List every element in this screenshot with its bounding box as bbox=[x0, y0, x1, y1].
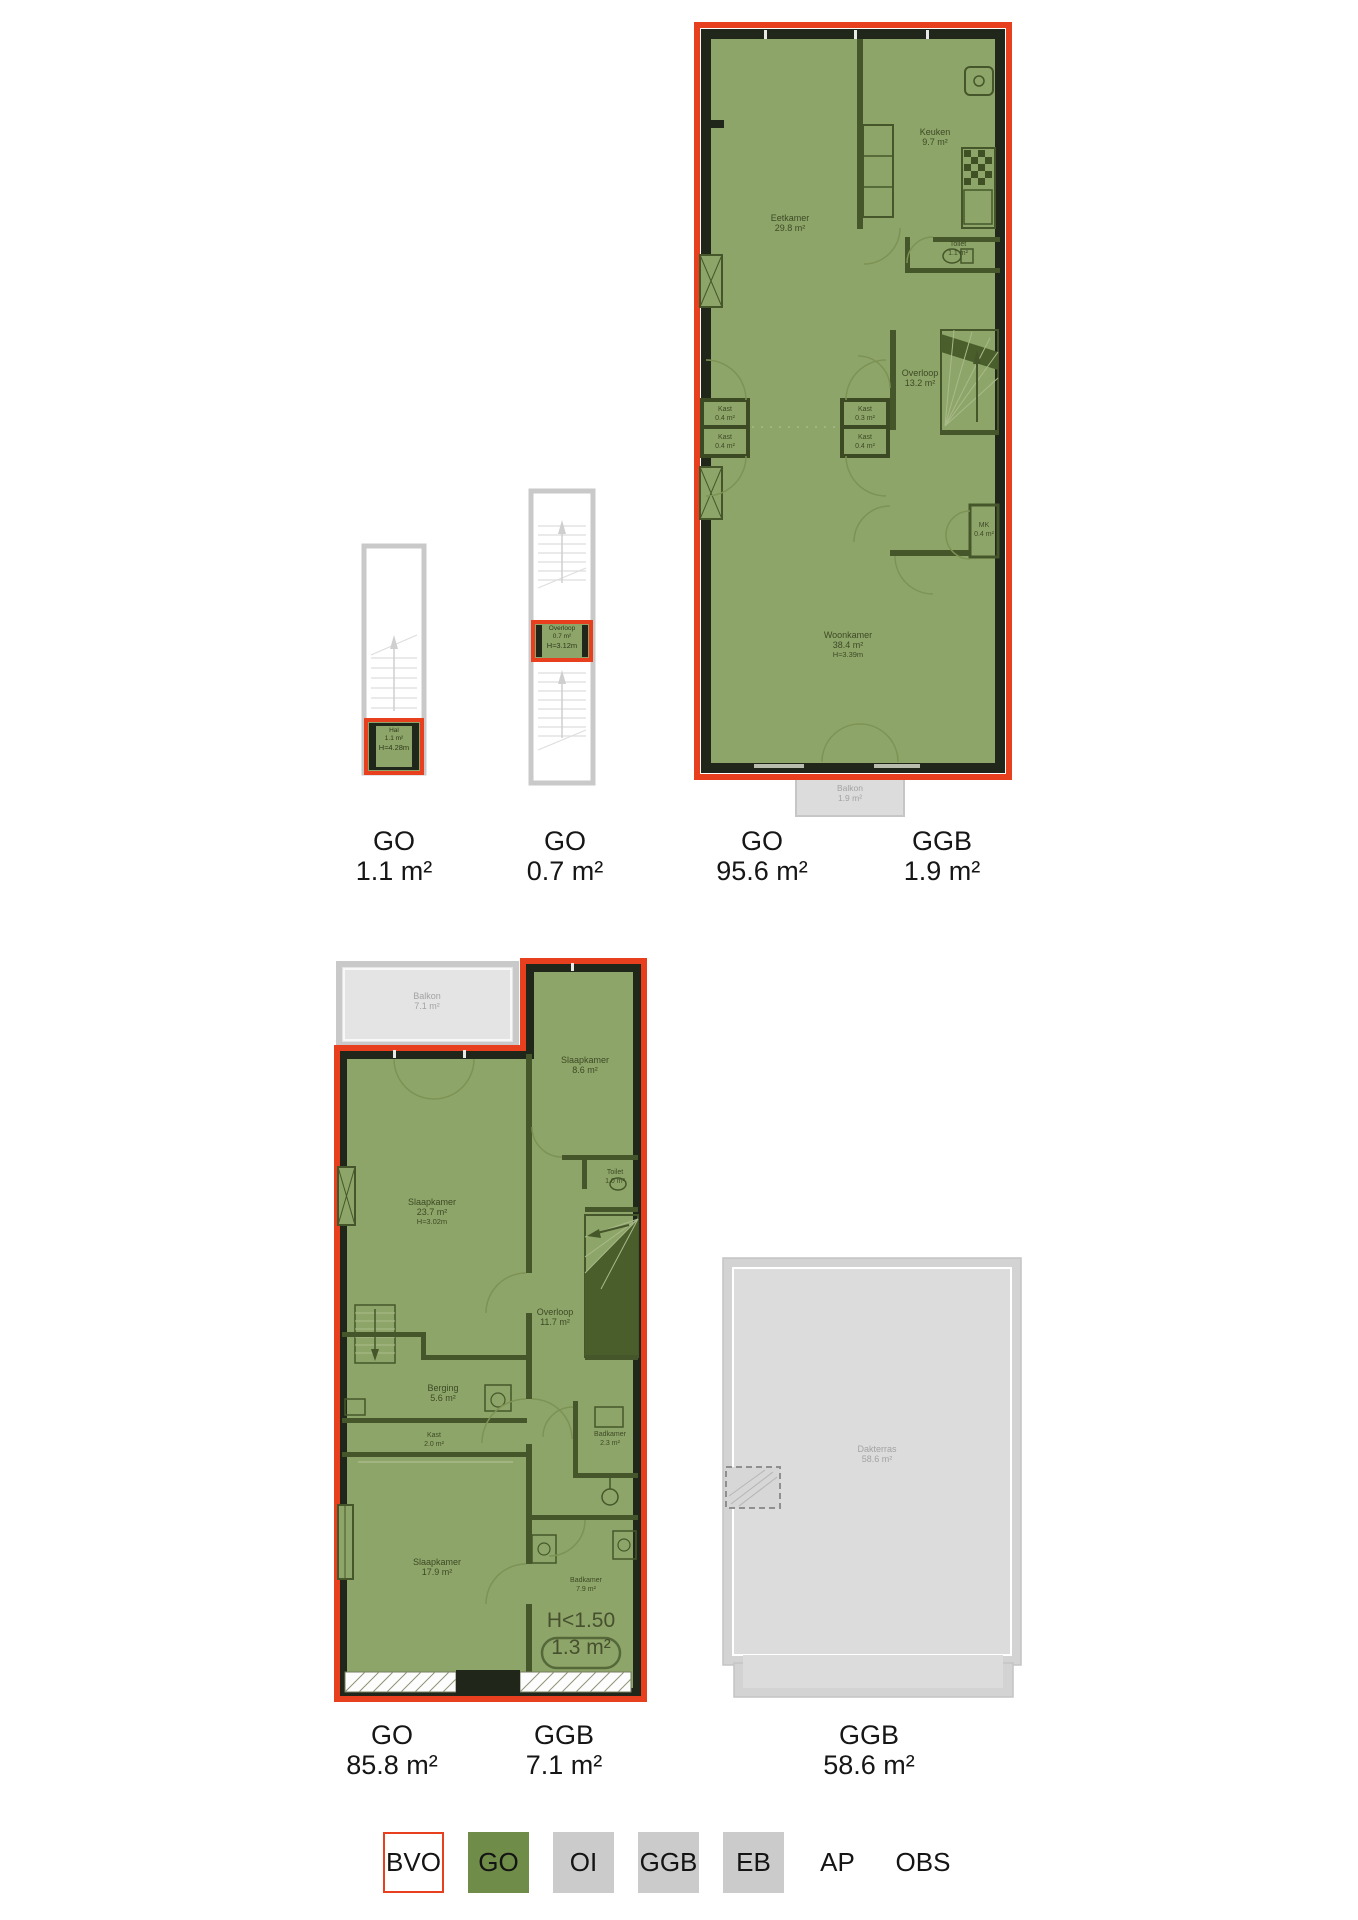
plan-floor2: Balkon 7.1 m² Slaapkamer 8.6 m² Toilet 1… bbox=[333, 957, 648, 1703]
plan-floor1: Eetkamer 29.8 m² Keuken 9.7 m² Toilet 1.… bbox=[694, 22, 1012, 780]
plan-roof-terrace: Dakterras 58.6 m² bbox=[721, 1256, 1023, 1700]
legend-label-obs: OBS bbox=[896, 1847, 951, 1878]
legend-label-ap: AP bbox=[820, 1847, 855, 1878]
room-label-slaapkamer1: Slaapkamer 8.6 m² bbox=[561, 1055, 609, 1075]
legend-label-oi: OI bbox=[570, 1847, 597, 1878]
room-label-overloop-small: Overloop 0.7 m² H≈3.12m bbox=[547, 625, 577, 650]
room-label-kast-l1: Kast 0.4 m² bbox=[715, 406, 735, 423]
legend-item-ggb: GGB bbox=[638, 1832, 699, 1893]
room-label-dakterras: Dakterras 58.6 m² bbox=[857, 1444, 896, 1464]
area-label-ggb-1-9: GGB 1.9 m² bbox=[904, 826, 981, 886]
room-label-hal: Hal 1.1 m² H≈4.28m bbox=[379, 727, 409, 752]
room-label-woonkamer: Woonkamer 38.4 m² H≈3.39m bbox=[824, 630, 872, 659]
plan-floor1-drawing bbox=[694, 22, 1012, 780]
room-label-kast-l2: Kast 0.4 m² bbox=[715, 434, 735, 451]
legend-item-bvo: BVO bbox=[383, 1832, 444, 1893]
room-label-toilet-floor1: Toilet 1.1 m² bbox=[948, 241, 968, 258]
plan-stairwell-hal: Hal 1.1 m² H≈4.28m bbox=[361, 543, 427, 776]
room-label-slaapkamer3: Slaapkamer 17.9 m² bbox=[413, 1557, 461, 1577]
room-label-overloop-floor2: Overloop 11.7 m² bbox=[537, 1307, 574, 1327]
room-label-badkamer1: Badkamer 2.3 m² bbox=[594, 1431, 626, 1448]
legend-label-go: GO bbox=[478, 1847, 518, 1878]
area-label-go-95-6: GO 95.6 m² bbox=[716, 826, 808, 886]
legend-label-ggb: GGB bbox=[640, 1847, 698, 1878]
floorplan-measurement-sheet: Balkon 1.9 m² Hal 1.1 m² H≈4.28m bbox=[0, 0, 1358, 1920]
area-label-go-0-7: GO 0.7 m² bbox=[527, 826, 604, 886]
room-label-mk: MK 0.4 m² bbox=[974, 522, 994, 539]
area-label-go-85-8: GO 85.8 m² bbox=[346, 1720, 438, 1780]
room-label-balkon-floor1: Balkon 1.9 m² bbox=[837, 784, 863, 803]
plan-stairwell-overloop: Overloop 0.7 m² H≈3.12m bbox=[528, 488, 596, 786]
legend-item-oi: OI bbox=[553, 1832, 614, 1893]
area-label-go-1-1: GO 1.1 m² bbox=[356, 826, 433, 886]
legend-label-bvo: BVO bbox=[386, 1847, 441, 1878]
annotation-height-restriction: H<1.50 1.3 m² bbox=[547, 1607, 615, 1661]
room-label-kast-r2: Kast 0.4 m² bbox=[855, 434, 875, 451]
legend-item-ap: AP bbox=[807, 1832, 868, 1893]
room-label-slaapkamer2: Slaapkamer 23.7 m² H≈3.02m bbox=[408, 1197, 456, 1226]
room-label-eetkamer: Eetkamer 29.8 m² bbox=[771, 213, 810, 233]
plan-roof-drawing bbox=[721, 1256, 1023, 1700]
room-label-overloop-floor1: Overloop 13.2 m² bbox=[902, 368, 939, 388]
room-label-berging: Berging 5.6 m² bbox=[427, 1383, 458, 1403]
floor1-balcony: Balkon 1.9 m² bbox=[795, 776, 905, 817]
legend-item-obs: OBS bbox=[889, 1832, 957, 1893]
legend-item-go: GO bbox=[468, 1832, 529, 1893]
room-label-balkon-floor2: Balkon 7.1 m² bbox=[413, 991, 441, 1011]
room-label-toilet-floor2: Toilet 1.0 m² bbox=[605, 1169, 625, 1186]
area-label-ggb-58-6: GGB 58.6 m² bbox=[823, 1720, 915, 1780]
legend-item-eb: EB bbox=[723, 1832, 784, 1893]
room-label-keuken: Keuken 9.7 m² bbox=[920, 127, 951, 147]
room-label-badkamer2: Badkamer 7.9 m² bbox=[570, 1577, 602, 1594]
room-label-kast-floor2: Kast 2.0 m² bbox=[424, 1432, 444, 1449]
legend-label-eb: EB bbox=[736, 1847, 771, 1878]
area-label-ggb-7-1: GGB 7.1 m² bbox=[526, 1720, 603, 1780]
room-label-kast-r1: Kast 0.3 m² bbox=[855, 406, 875, 423]
